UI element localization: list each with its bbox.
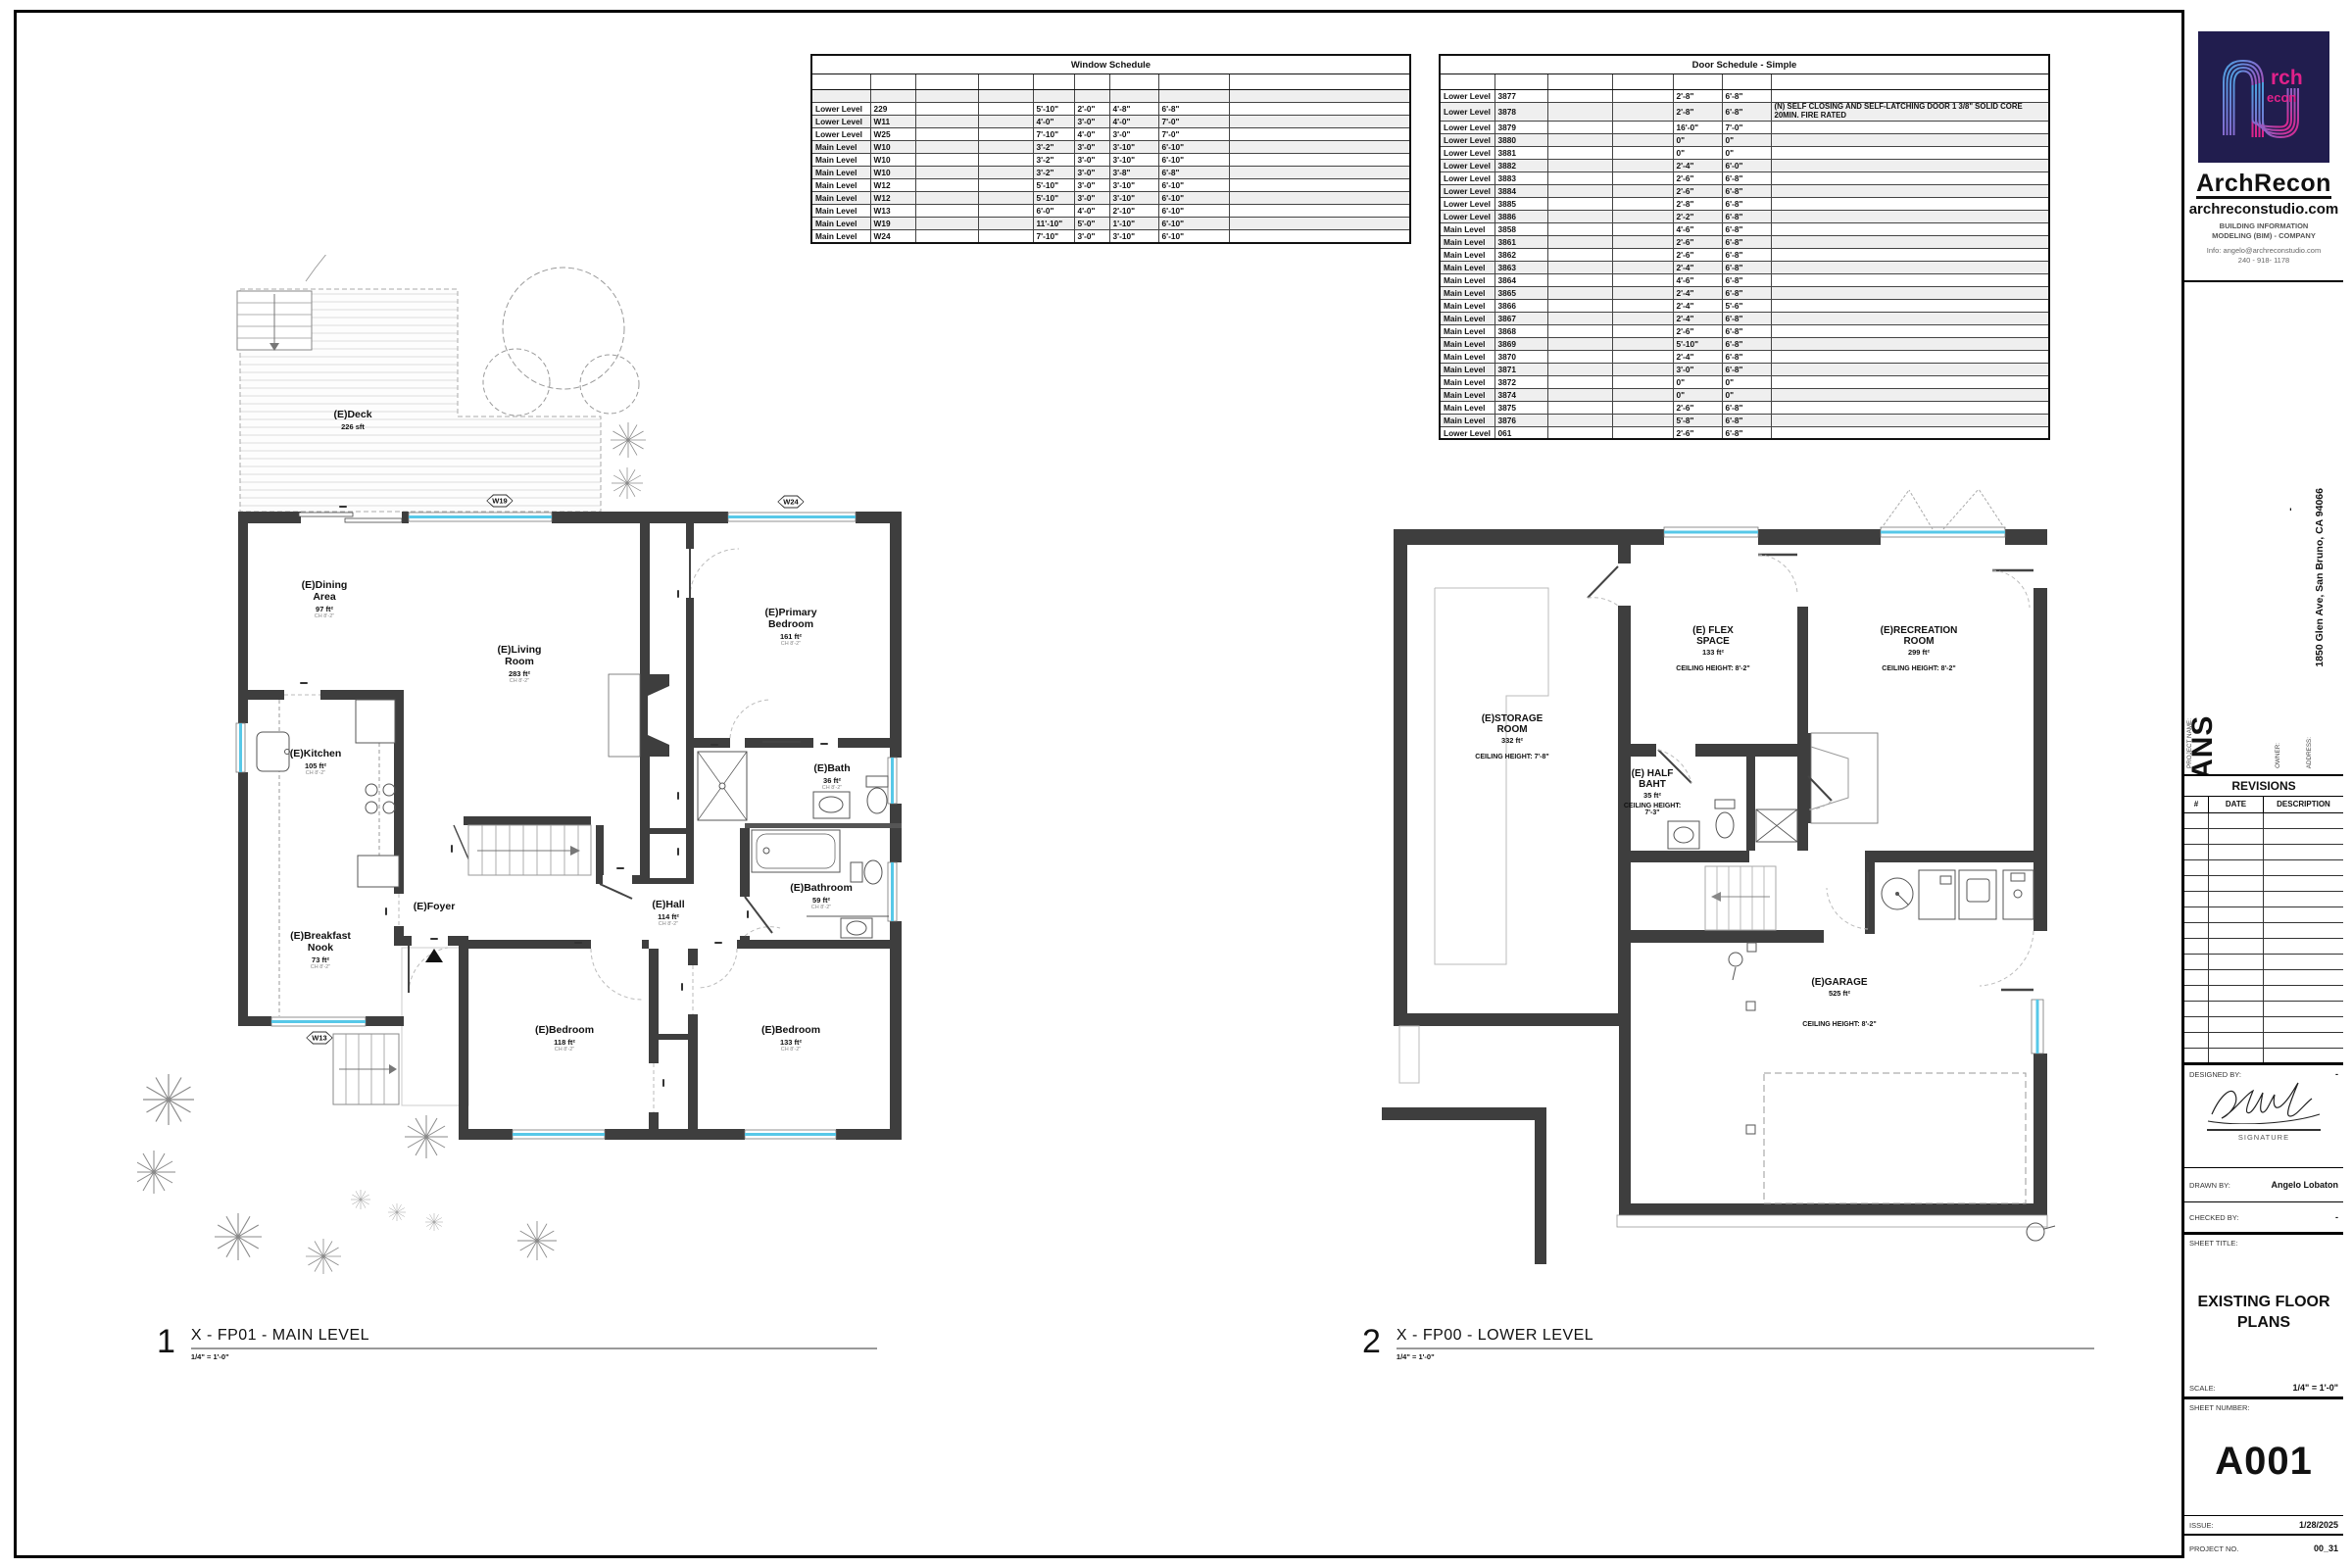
revision-row [2184,876,2343,892]
table-row: Main LevelW125'-10"3'-0"3'-10"6'-10" [811,192,1410,205]
table-row: Lower LevelW114'-0"3'-0"4'-0"7'-0" [811,116,1410,128]
revision-row [2184,955,2343,970]
plan2-title: 2 X - FP00 - LOWER LEVEL 1/4" = 1'-0" [1362,1325,2094,1361]
issue-panel: ISSUE: 1/28/2025 [2184,1516,2343,1536]
plan-scale: 1/4" = 1'-0" [191,1352,877,1361]
company-logo: rch econ [2198,31,2329,163]
window-schedule-title: Window Schedule [811,55,1410,74]
table-row: Main Level38740"0" [1440,388,2049,401]
designed-by-value: - [2335,1069,2338,1079]
table-row: Main LevelW1911'-10"5'-0"1'-10"6'-10" [811,218,1410,230]
column-header [1673,74,1722,90]
window-schedule-table: Window Schedule Lower Level2295'-10"2'-0… [810,54,1411,244]
revision-row [2184,970,2343,986]
sheet-number-label: SHEET NUMBER: [2189,1403,2250,1412]
plan-title-underline [191,1347,877,1349]
signature [2202,1079,2326,1124]
signature-label: SIGNATURE [2184,1133,2343,1142]
table-row: Main Level38695'-10"6'-8" [1440,337,2049,350]
table-row: Lower Level38782'-8"6'-8"(N) SELF CLOSIN… [1440,103,2049,122]
column-header [978,74,1033,90]
table-row: Main Level38632'-4"6'-8" [1440,261,2049,273]
entry-arrow-icon [425,949,443,962]
project-number-panel: PROJECT NO. 00_31 [2184,1536,2343,1561]
table-row: Main Level38672'-4"6'-8" [1440,312,2049,324]
revision-row [2184,923,2343,939]
table-row: Main Level38702'-4"6'-8" [1440,350,2049,363]
table-row: Main LevelW103'-2"3'-0"3'-10"6'-10" [811,141,1410,154]
table-row: Main Level38644'-6"6'-8" [1440,273,2049,286]
plan-name: X - FP00 - LOWER LEVEL [1396,1327,2094,1345]
table-row: Main Level38584'-6"6'-8" [1440,222,2049,235]
column-header [1612,74,1673,90]
plan-scale: 1/4" = 1'-0" [1396,1352,2094,1361]
table-row: Lower Level38862'-2"6'-8" [1440,210,2049,222]
table-row: Main Level38682'-6"6'-8" [1440,324,2049,337]
door-schedule-header [1440,74,2049,90]
title-block: rch econ ArchRecon archreconstudio.com B… [2181,10,2343,1558]
table-row: Main Level38662'-4"5'-6" [1440,299,2049,312]
column-header [1440,74,1494,90]
company-sub2: MODELING (BIM) - COMPANY [2184,231,2343,241]
table-row: Main LevelW247'-10"3'-0"3'-10"6'-10" [811,230,1410,243]
company-email: Info: angelo@archreconstudio.com [2184,246,2343,256]
plan-name: X - FP01 - MAIN LEVEL [191,1327,877,1345]
revisions-header: # DATE DESCRIPTION [2184,797,2343,813]
table-row: Lower Level38800"0" [1440,133,2049,146]
window-schedule-header [811,74,1410,90]
lower-level-vertical-texts [1372,461,2117,1294]
column-header [1771,74,2049,90]
drawing-sheet: Window Schedule Lower Level2295'-10"2'-0… [0,0,2352,1568]
drawn-by-value: Angelo Lobaton [2272,1180,2339,1190]
lower-level-floor-plan: (E)STORAGEROOM 332 ft² CEILING HEIGHT: 7… [1372,461,2117,1294]
revision-row [2184,845,2343,860]
column-header [915,74,978,90]
column-header [1109,74,1158,90]
sheet-number-panel: SHEET NUMBER: A001 [2184,1399,2343,1516]
column-header [1547,74,1612,90]
sheet-title-label: SHEET TITLE: [2189,1239,2237,1248]
main-level-vertical-texts [137,255,921,1382]
issue-value: 1/28/2025 [2299,1520,2338,1530]
column-header [1722,74,1771,90]
column-header [811,74,870,90]
drawn-by-panel: DRAWN BY: Angelo Lobaton [2184,1168,2343,1202]
checked-by-panel: CHECKED BY: - [2184,1202,2343,1235]
table-row: Lower Level38772'-8"6'-8" [1440,90,2049,103]
door-schedule-title: Door Schedule - Simple [1440,55,2049,74]
table-row: Main LevelW136'-0"4'-0"2'-10"6'-10" [811,205,1410,218]
revision-row [2184,860,2343,876]
revision-row [2184,986,2343,1002]
table-row: Lower Level38852'-8"6'-8" [1440,197,2049,210]
revision-row [2184,939,2343,955]
revision-row [2184,1033,2343,1049]
project-panel: AS-BUILT FLOOR PLANS 1850 Glen Ave, San … [2184,282,2343,776]
company-phone: 240 - 918- 1178 [2184,256,2343,266]
table-row: Lower LevelW257'-10"4'-0"3'-0"7'-0" [811,128,1410,141]
project-owner: - [2285,508,2296,511]
column-header [870,74,915,90]
table-row: Main Level38652'-4"6'-8" [1440,286,2049,299]
table-row: Lower Level38842'-6"6'-8" [1440,184,2049,197]
column-header [1033,74,1074,90]
company-panel: rch econ ArchRecon archreconstudio.com B… [2184,10,2343,282]
signature-line [2207,1129,2321,1131]
issue-label: ISSUE: [2189,1521,2214,1530]
main-level-floor-plan: (E)DiningArea 97 ft² CH 8'-2" (E)LivingR… [137,255,921,1382]
table-row [811,90,1410,103]
table-row: Main Level38720"0" [1440,375,2049,388]
table-row: Main Level38765'-8"6'-8" [1440,414,2049,426]
revisions-title: REVISIONS [2184,776,2343,797]
revision-row [2184,892,2343,907]
table-row: Lower Level0612'-6"6'-8" [1440,426,2049,439]
column-header [1229,74,1410,90]
table-row: Lower Level387916'-0"7'-0" [1440,121,2049,133]
revision-row [2184,1049,2343,1064]
project-number-label: PROJECT NO. [2189,1544,2238,1553]
designed-by-panel: DESIGNED BY: - SIGNATURE [2184,1065,2343,1168]
revision-row [2184,907,2343,923]
project-number-value: 00_31 [2314,1543,2338,1553]
company-sub1: BUILDING INFORMATION [2184,221,2343,231]
table-row: Main LevelW103'-2"3'-0"3'-10"6'-10" [811,154,1410,167]
owner-label: OWNER: [2276,743,2282,768]
revision-row [2184,1017,2343,1033]
sheet-number: A001 [2184,1440,2343,1484]
checked-by-value: - [2335,1212,2338,1222]
revisions-panel: REVISIONS # DATE DESCRIPTION [2184,776,2343,1065]
column-header [1494,74,1547,90]
project-name-label: PROJECT NAME: [2187,718,2194,768]
revision-row [2184,829,2343,845]
revision-row [2184,813,2343,829]
plan-number: 2 [1362,1325,1381,1358]
table-row: Main Level38713'-0"6'-8" [1440,363,2049,375]
project-address: 1850 Glen Ave, San Bruno, CA 94066 [2314,488,2326,667]
column-header [1074,74,1109,90]
sheet-title: EXISTING FLOOR PLANS [2184,1293,2343,1334]
table-row: Lower Level2295'-10"2'-0"4'-8"6'-8" [811,103,1410,116]
address-label: ADDRESS: [2307,737,2314,768]
table-row: Main Level38752'-6"6'-8" [1440,401,2049,414]
table-row: Main LevelW125'-10"3'-0"3'-10"6'-10" [811,179,1410,192]
table-row: Main LevelW103'-2"3'-0"3'-8"6'-8" [811,167,1410,179]
company-name: ArchRecon [2196,171,2331,199]
plan-title-underline [1396,1347,2094,1349]
checked-by-label: CHECKED BY: [2189,1213,2238,1222]
revision-row [2184,1002,2343,1017]
column-header [1158,74,1229,90]
scale-label: SCALE: [2189,1384,2216,1393]
scale-value: 1/4" = 1'-0" [2293,1383,2338,1393]
table-row: Lower Level38822'-4"6'-0" [1440,159,2049,171]
sheet-title-panel: SHEET TITLE: EXISTING FLOOR PLANS SCALE:… [2184,1235,2343,1399]
table-row: Lower Level38832'-6"6'-8" [1440,171,2049,184]
table-row: Main Level38622'-6"6'-8" [1440,248,2049,261]
company-url: archreconstudio.com [2184,201,2343,218]
drawn-by-label: DRAWN BY: [2189,1181,2230,1190]
door-schedule-table: Door Schedule - Simple Lower Level38772'… [1439,54,2050,440]
designed-by-label: DESIGNED BY: [2189,1070,2241,1079]
logo-word1: rch [2271,67,2303,89]
plan1-title: 1 X - FP01 - MAIN LEVEL 1/4" = 1'-0" [157,1325,877,1361]
table-row: Main Level38612'-6"6'-8" [1440,235,2049,248]
plan-number: 1 [157,1325,175,1358]
table-row: Lower Level38810"0" [1440,146,2049,159]
logo-word2: econ [2267,90,2296,105]
